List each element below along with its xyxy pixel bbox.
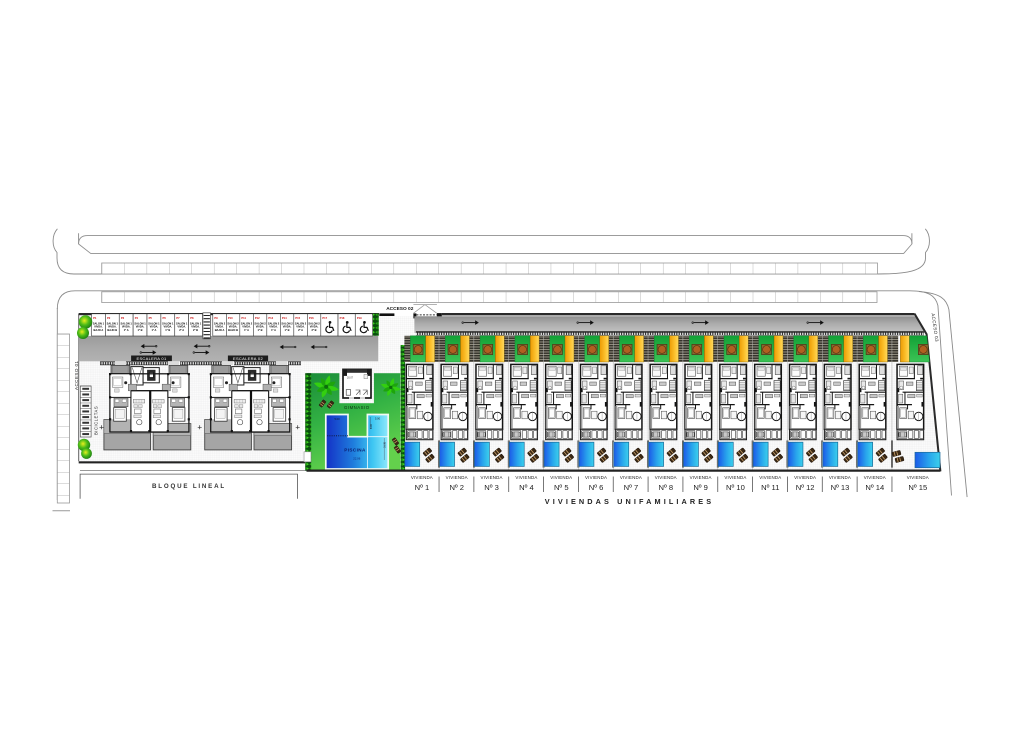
svg-text:P5: P5 (149, 316, 153, 320)
svg-text:ESCALERA 01: ESCALERA 01 (137, 356, 167, 361)
svg-text:5.00: 5.00 (375, 417, 381, 421)
svg-text:VIVIENDA: VIVIENDA (481, 475, 503, 480)
svg-text:ACCESO 02: ACCESO 02 (386, 306, 414, 312)
svg-text:VIVIENDA: VIVIENDA (655, 475, 677, 480)
svg-text:2º A: 2º A (179, 328, 184, 332)
svg-text:P14: P14 (282, 316, 287, 320)
svg-text:ACCESO 03: ACCESO 03 (931, 313, 940, 342)
svg-text:5.00: 5.00 (334, 417, 340, 421)
svg-text:Nº 8: Nº 8 (658, 483, 673, 492)
svg-text:GIMNASIO: GIMNASIO (344, 405, 370, 410)
svg-text:VIVIENDA: VIVIENDA (620, 475, 642, 480)
svg-text:1º A: 1º A (244, 328, 249, 332)
svg-text:Nº 7: Nº 7 (624, 483, 639, 492)
svg-text:Nº 10: Nº 10 (726, 483, 745, 492)
svg-text:VIVIENDA: VIVIENDA (829, 475, 851, 480)
svg-text:Nº 11: Nº 11 (761, 483, 779, 492)
svg-text:ESCALERA 02: ESCALERA 02 (233, 356, 263, 361)
svg-text:BLOQUE LINEAL: BLOQUE LINEAL (152, 483, 226, 490)
svg-text:20.07: 20.07 (347, 377, 354, 380)
svg-text:P7: P7 (176, 316, 180, 320)
svg-text:1º B: 1º B (165, 328, 170, 332)
svg-text:Nº 14: Nº 14 (865, 483, 884, 492)
svg-text:1º B: 1º B (138, 328, 143, 332)
svg-text:P1: P1 (93, 316, 97, 320)
svg-text:P6: P6 (162, 316, 166, 320)
svg-text:Nº 4: Nº 4 (519, 483, 534, 492)
svg-text:P4: P4 (135, 316, 139, 320)
svg-text:VIVIENDA: VIVIENDA (724, 475, 746, 480)
svg-text:2º B: 2º B (312, 328, 317, 332)
svg-text:2º A: 2º A (298, 328, 303, 332)
svg-text:Nº 6: Nº 6 (589, 483, 604, 492)
svg-text:VIVIENDA: VIVIENDA (690, 475, 712, 480)
svg-text:VIVIENDAS UNIFAMILIARES: VIVIENDAS UNIFAMILIARES (545, 497, 714, 506)
svg-text:VIVIENDA: VIVIENDA (794, 475, 816, 480)
svg-text:P15: P15 (295, 316, 300, 320)
svg-text:P16: P16 (309, 316, 314, 320)
svg-text:P13: P13 (268, 316, 273, 320)
svg-text:VIVIENDA: VIVIENDA (411, 475, 433, 480)
svg-text:P8: P8 (190, 316, 194, 320)
svg-text:Nº 12: Nº 12 (796, 483, 815, 492)
svg-text:Nº 5: Nº 5 (554, 483, 569, 492)
svg-text:VIVIENDA: VIVIENDA (864, 475, 886, 480)
svg-text:VIVIENDA: VIVIENDA (550, 475, 572, 480)
svg-text:P19: P19 (357, 316, 362, 320)
svg-text:P11: P11 (241, 316, 246, 320)
svg-text:Nº 1: Nº 1 (415, 483, 430, 492)
svg-text:Nº 9: Nº 9 (693, 483, 708, 492)
svg-text:BAJO A: BAJO A (94, 328, 104, 332)
svg-text:VIVIENDA: VIVIENDA (446, 475, 468, 480)
svg-text:PISCINA: PISCINA (344, 447, 366, 452)
svg-text:1º B: 1º B (258, 328, 263, 332)
svg-text:1º A: 1º A (271, 328, 276, 332)
svg-text:BAJO B: BAJO B (228, 328, 238, 332)
svg-text:BICICLETAS: BICICLETAS (94, 406, 99, 435)
svg-text:VIVIENDA: VIVIENDA (515, 475, 537, 480)
svg-text:ACCESO 01: ACCESO 01 (74, 361, 79, 390)
svg-text:Nº 3: Nº 3 (484, 483, 499, 492)
svg-text:P12: P12 (255, 316, 260, 320)
svg-text:Nº 15: Nº 15 (908, 483, 927, 492)
svg-text:P10: P10 (228, 316, 233, 320)
svg-text:P18: P18 (340, 316, 345, 320)
svg-text:1º B: 1º B (285, 328, 290, 332)
svg-text:VIVIENDA: VIVIENDA (585, 475, 607, 480)
svg-text:22.06: 22.06 (353, 457, 360, 461)
svg-text:1º A: 1º A (124, 328, 129, 332)
svg-text:VIVIENDA: VIVIENDA (907, 475, 929, 480)
svg-text:P9: P9 (214, 316, 218, 320)
svg-text:2º B: 2º B (193, 328, 198, 332)
svg-text:P17: P17 (322, 316, 327, 320)
svg-text:16.06: 16.06 (383, 441, 386, 448)
svg-text:BAJO B: BAJO B (107, 328, 117, 332)
svg-text:P3: P3 (121, 316, 125, 320)
svg-text:1º A: 1º A (151, 328, 156, 332)
svg-text:BAJO A: BAJO A (215, 328, 225, 332)
svg-text:Nº 13: Nº 13 (831, 483, 850, 492)
svg-text:Nº 2: Nº 2 (449, 483, 464, 492)
svg-text:P2: P2 (107, 316, 111, 320)
svg-text:VIVIENDA: VIVIENDA (759, 475, 781, 480)
